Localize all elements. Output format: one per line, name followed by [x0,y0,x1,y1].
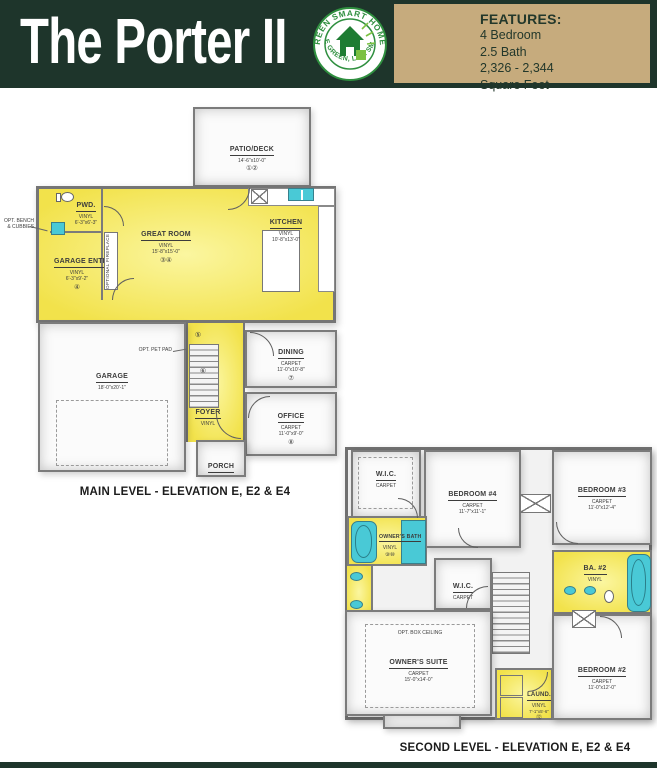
room-name: BEDROOM #2 [578,666,626,677]
plan-title: The Porter II [20,4,287,78]
room-porch: PORCH [196,440,246,477]
room-name: BEDROOM #3 [578,486,626,497]
room-dims: 6'-3"x6'-3" [68,220,104,227]
owners-vanity [347,566,373,618]
room-marks: ⑨⑩ [379,552,401,559]
room-dims: 7'-1"x5'-6" [524,709,554,715]
room-floor: CARPET [554,499,650,506]
sink-divider [301,190,303,200]
sink-icon [564,586,576,595]
feature-baths: 2.5 Bath [480,44,650,61]
door-arc [556,522,578,544]
tub-inner [631,559,646,606]
room-name: BA. #2 [584,564,607,575]
opt-box-ceiling-dashed [365,624,475,708]
great-room-kitchen-block [36,186,336,323]
washer-icon [500,675,523,696]
closet-icon [572,610,596,628]
room-wic-hall: W.I.C. CARPET [434,558,492,610]
mark-stairs: ⑥ [197,368,209,377]
range-icon [251,189,268,204]
door-arc [466,586,488,608]
door-arc [250,332,274,356]
room-name: GARAGE [96,372,128,383]
room-bath-2: BA. #2 VINYL [552,550,652,614]
closet-dashed [358,457,413,509]
room-name: PORCH [208,462,234,473]
sink-icon [350,600,363,609]
room-dims: 11'-7"x11'-1" [426,509,519,516]
green-smart-homes-logo-icon: GREEN SMART HOMES LIVE GREEN, LIVE SMART [312,6,388,82]
kitchen-counter [248,188,335,206]
bathtub-icon [351,521,377,563]
dryer-icon [500,697,523,718]
kitchen-island [262,230,300,292]
second-level-caption: SECOND LEVEL - ELEVATION E, E2 & E4 [370,742,657,754]
floor-plan-main-level: PATIO/DECK 14'-6"x10'-0" ①② PWD. VINYL 6… [0,0,657,768]
room-floor: VINYL [572,577,618,584]
room-marks: ⑫ [524,715,554,722]
toilet-icon [61,192,74,202]
room-floor: VINYL [68,214,104,221]
room-bedroom-4: BEDROOM #4 CARPET 11'-7"x11'-1" [424,450,521,548]
annotation-opt-bench: OPT. BENCH & CUBBIES [0,218,34,231]
room-floor: VINYL [54,270,100,277]
room-floor: CARPET [554,679,650,686]
leader-line [173,349,187,352]
kitchen-sink-icon [288,188,314,201]
sink-icon [584,586,596,595]
door-arc [248,396,270,418]
room-name: OFFICE [278,412,305,423]
room-garage-entry: GARAGE ENTRY VINYL 6'-3"x9'-2" ④ [50,233,103,300]
floor-plan-second-level: W.I.C. CARPET BEDROOM #4 CARPET 11'-7"x1… [0,0,657,768]
room-kitchen-label: KITCHEN VINYL 10'-8"x13'-0" [255,210,317,244]
room-floor: VINYL [186,421,230,428]
room-floor: CARPET [347,671,490,678]
door-arc [104,206,124,226]
main-level-caption: MAIN LEVEL - ELEVATION E, E2 & E4 [40,486,330,498]
room-floor: CARPET [426,503,519,510]
room-owners-suite: OPT. BOX CEILING OWNER'S SUITE CARPET 15… [345,610,492,716]
door-arc [228,188,250,210]
room-dims: 15'-0"x14'-0" [347,677,490,684]
feature-sqft-range: 2,326 - 2,344 [480,60,650,77]
room-name: GARAGE ENTRY [54,257,113,268]
door-arc [398,498,418,518]
room-floor: CARPET [247,361,335,368]
room-floor: CARPET [436,595,490,602]
room-dims: 6'-3"x9'-2" [54,276,100,283]
room-name: GREAT ROOM [141,230,191,241]
stairs [492,572,530,654]
room-garage: GARAGE 18'-0"x20'-1" [38,322,186,472]
room-name: PWD. [76,201,95,212]
tub-inner [355,525,372,558]
door-arc [458,528,478,548]
annotation-optional-fireplace: OPTIONAL FIREPLACE [104,232,118,290]
room-dims: 11'-0"x12'-4" [554,505,650,512]
room-floor: CARPET [247,425,335,432]
leader-line [30,226,48,231]
room-name: OWNER'S BATH [379,534,421,542]
room-dining: DINING CARPET 11'-0"x10'-8" ⑦ [245,330,337,388]
mark-pet-pad: ⑤ [192,332,204,341]
room-laundry: LAUND. VINYL 7'-1"x5'-6" ⑫ [495,668,553,720]
room-name: LAUND. [527,692,551,701]
room-dims: 11'-0"x10'-8" [247,367,335,374]
door-arc [528,672,548,692]
room-name: DINING [278,348,304,359]
stair-foyer-column [186,323,245,442]
room-bedroom-2: BEDROOM #2 CARPET 11'-0"x12'-0" [552,614,652,720]
shower-icon [401,520,426,564]
garage-door-dashed [56,400,168,466]
room-bedroom-3: BEDROOM #3 CARPET 11'-0"x12'-4" [552,450,652,545]
room-name: OWNER'S SUITE [389,658,447,669]
room-name: BEDROOM #4 [448,490,496,501]
room-name: W.I.C. [453,582,473,593]
bathtub-icon [627,554,651,612]
room-dims: 10'-8"x13'-0" [255,237,317,244]
room-name: KITCHEN [270,218,303,229]
room-marks: ⑦ [247,375,335,383]
room-foyer-label: FOYER VINYL [186,400,230,427]
room-floor: CARPET [353,483,419,490]
room-marks: ④ [54,284,100,292]
header-banner: The Porter II FEATURES: 4 Bedroom 2.5 Ba… [0,0,657,88]
room-dims: 11'-0"x12'-0" [554,685,650,692]
room-patio-deck: PATIO/DECK 14'-6"x10'-0" ①② [193,107,311,187]
second-level-outline [345,447,652,720]
toilet-icon [56,193,61,202]
room-dims: 15'-8"x15'-0" [118,249,214,256]
front-door-arc [216,414,241,439]
room-wic-owners: W.I.C. CARPET [351,450,421,518]
kitchen-counter [318,206,335,292]
room-great-room-label: GREAT ROOM VINYL 15'-8"x15'-0" ③④ [118,222,214,265]
room-dims: 18'-0"x20'-1" [40,385,184,392]
room-floor: VINYL [118,243,214,250]
feature-bedrooms: 4 Bedroom [480,27,650,44]
linen-closet-icon [520,494,551,513]
door-arc [112,278,134,300]
feature-sqft-label: Square Feet [480,77,650,94]
room-office: OFFICE CARPET 11'-0"x9'-0" ⑧ [245,392,337,456]
sink-icon [51,222,65,235]
room-dims: 11'-0"x9'-0" [247,431,335,438]
stairs [189,344,219,408]
door-arc [600,616,622,638]
room-marks: ③④ [118,257,214,265]
room-floor: VINYL [255,231,317,238]
toilet-icon [604,590,614,603]
room-name: FOYER [195,408,220,419]
annotation-box-ceiling: OPT. BOX CEILING [395,630,445,636]
room-pwd: PWD. VINYL 6'-3"x6'-3" [50,189,103,233]
room-dims: 14'-6"x10'-0" [195,158,309,165]
room-name: PATIO/DECK [230,145,274,156]
features-panel: FEATURES: 4 Bedroom 2.5 Bath 2,326 - 2,3… [394,4,650,83]
room-owners-bath: OWNER'S BATH VINYL ⑨⑩ [347,516,427,566]
room-name: W.I.C. [376,470,396,481]
sink-icon [350,572,363,581]
annotation-pet-pad: OPT. PET PAD [138,347,172,353]
room-floor: VINYL [524,703,554,710]
room-marks: ⑧ [247,439,335,447]
room-floor: VINYL [379,545,401,552]
bay-window [383,714,461,729]
bottom-border-strip [0,762,657,768]
features-heading: FEATURES: [480,11,650,27]
room-marks: ①② [195,165,309,173]
